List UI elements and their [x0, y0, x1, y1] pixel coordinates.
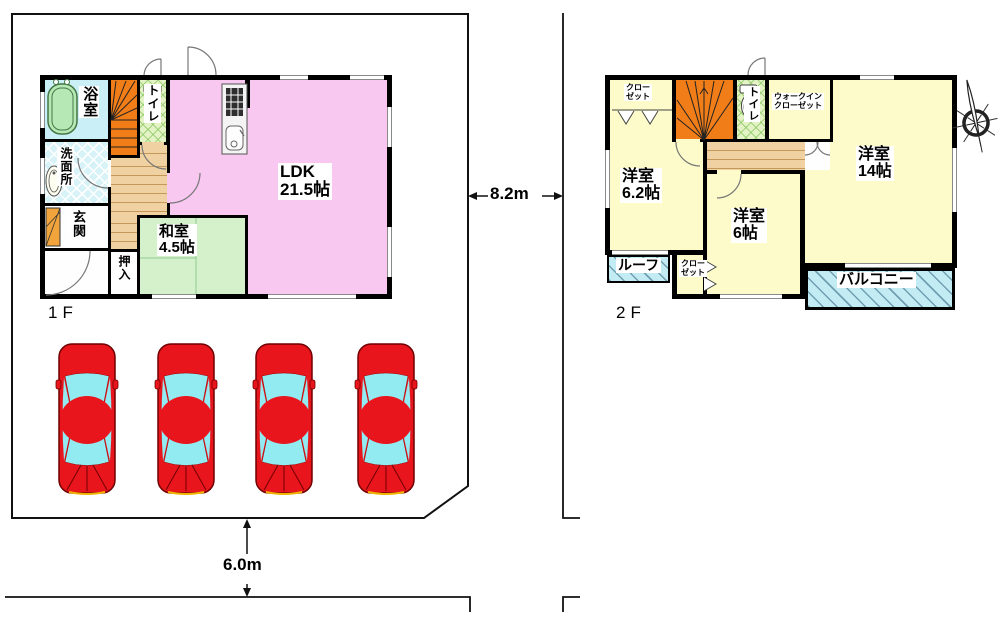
room-label-toilet-1f: トイレ: [144, 84, 161, 123]
window: [268, 294, 356, 299]
window: [720, 294, 782, 299]
window: [605, 150, 610, 208]
closet-bottom-line2: ゼット: [681, 269, 705, 278]
car-icon: [253, 344, 315, 494]
room-label-washroom: 洗面所: [57, 147, 74, 186]
room-label-west62: 洋室 6.2帖: [620, 168, 662, 203]
window: [387, 227, 392, 277]
door-gap: [167, 173, 170, 203]
window: [350, 75, 384, 80]
window: [860, 75, 894, 80]
room-label-wic: ウォークイン クローゼット: [772, 93, 824, 110]
floor-label-1f: 1F: [46, 304, 80, 322]
doorway-2f: [805, 142, 830, 170]
room-washroom: [45, 142, 108, 203]
car-icon: [155, 344, 217, 494]
plot-corner-mark: [563, 597, 580, 612]
west6-size: 6帖: [733, 225, 765, 242]
ldk-size: 21.5帖: [280, 181, 330, 199]
room-label-balcony: バルコニー: [837, 272, 916, 288]
dimension-depth-label: 8.2m: [488, 185, 531, 203]
room-label-ldk: LDK 21.5帖: [278, 163, 332, 200]
window: [387, 107, 392, 147]
room-label-toilet-2f: トイレ: [744, 86, 760, 122]
floor-plan-canvas: LDK 21.5帖 和室 4.5帖 浴室 トイレ 洗面所 玄関 押入 洋室 6.…: [0, 0, 1000, 625]
west14-size: 14帖: [858, 163, 892, 180]
west62-size: 6.2帖: [622, 185, 660, 202]
room-label-washitsu: 和室 4.5帖: [157, 224, 197, 256]
room-label-bath: 浴室: [79, 86, 99, 118]
room-label-west14: 洋室 14帖: [856, 146, 894, 181]
road-line: [5, 597, 470, 612]
wall: [605, 75, 957, 80]
wic-line2: クローゼット: [774, 102, 822, 111]
room-label-oshiire: 押入: [115, 255, 132, 281]
wall: [672, 75, 676, 142]
hallway-1f: [111, 158, 167, 215]
hallway-2f: [707, 142, 805, 170]
door-gap: [717, 170, 741, 174]
window: [280, 75, 308, 80]
dimension-frontage-label: 6.0m: [221, 556, 264, 574]
wall: [830, 78, 833, 142]
room-label-west6: 洋室 6帖: [731, 208, 767, 243]
window: [612, 250, 668, 255]
room-stairs-1f: [111, 80, 137, 155]
window: [40, 158, 45, 194]
room-label-roof: ルーフ: [616, 258, 661, 273]
west6-name: 洋室: [733, 208, 765, 225]
room-label-entrance: 玄関: [69, 210, 87, 238]
washitsu-name: 和室: [159, 224, 195, 240]
room-label-closet-top: クロー ゼット: [624, 84, 652, 101]
washitsu-size: 4.5帖: [159, 240, 195, 256]
wall: [800, 170, 805, 299]
door-gap: [676, 139, 700, 142]
west14-name: 洋室: [858, 146, 892, 163]
plot-boundary-right: [563, 13, 580, 518]
closet-top-line2: ゼット: [626, 93, 650, 102]
floor-label-2f: 2F: [614, 304, 648, 322]
room-label-closet-bottom: クロー ゼット: [679, 260, 707, 277]
west62-name: 洋室: [622, 168, 660, 185]
room-porch: [45, 251, 108, 294]
door-gap: [108, 160, 111, 187]
car-icon: [355, 344, 417, 494]
window: [952, 148, 957, 212]
window: [845, 263, 931, 268]
car-icon: [56, 344, 118, 494]
hallway-1f: [111, 215, 137, 249]
wall: [733, 75, 737, 142]
ldk-name: LDK: [280, 163, 330, 181]
room-stairs-2f: [676, 80, 733, 140]
window: [152, 294, 196, 299]
wall: [765, 75, 769, 142]
window: [40, 92, 45, 128]
kitchen-wall-stub: [245, 80, 250, 108]
wall: [672, 250, 677, 299]
hallway-1f: [140, 145, 167, 158]
